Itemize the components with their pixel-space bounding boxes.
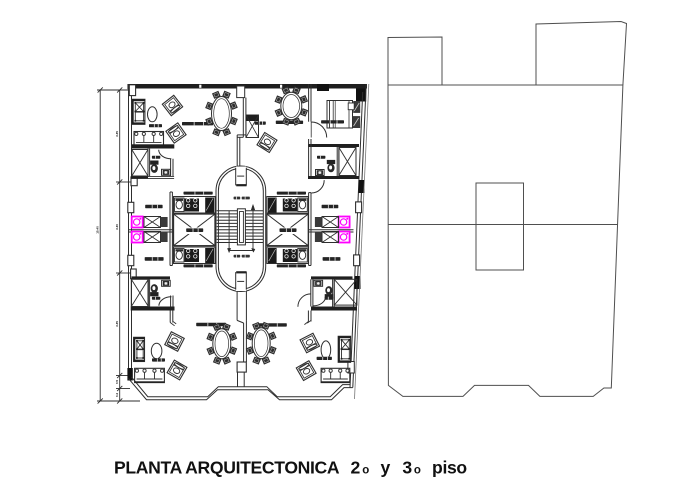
svg-text:3.30: 3.30: [115, 224, 119, 230]
svg-text:PLANTA ARQUITECTONICA2oy3opiso: PLANTA ARQUITECTONICA2oy3opiso: [114, 458, 467, 478]
svg-text:3.45: 3.45: [115, 131, 119, 137]
svg-text:3.45: 3.45: [115, 321, 119, 327]
svg-text:0.4: 0.4: [115, 393, 119, 398]
svg-text:0.5: 0.5: [115, 380, 119, 385]
svg-text:15.40: 15.40: [95, 226, 99, 234]
